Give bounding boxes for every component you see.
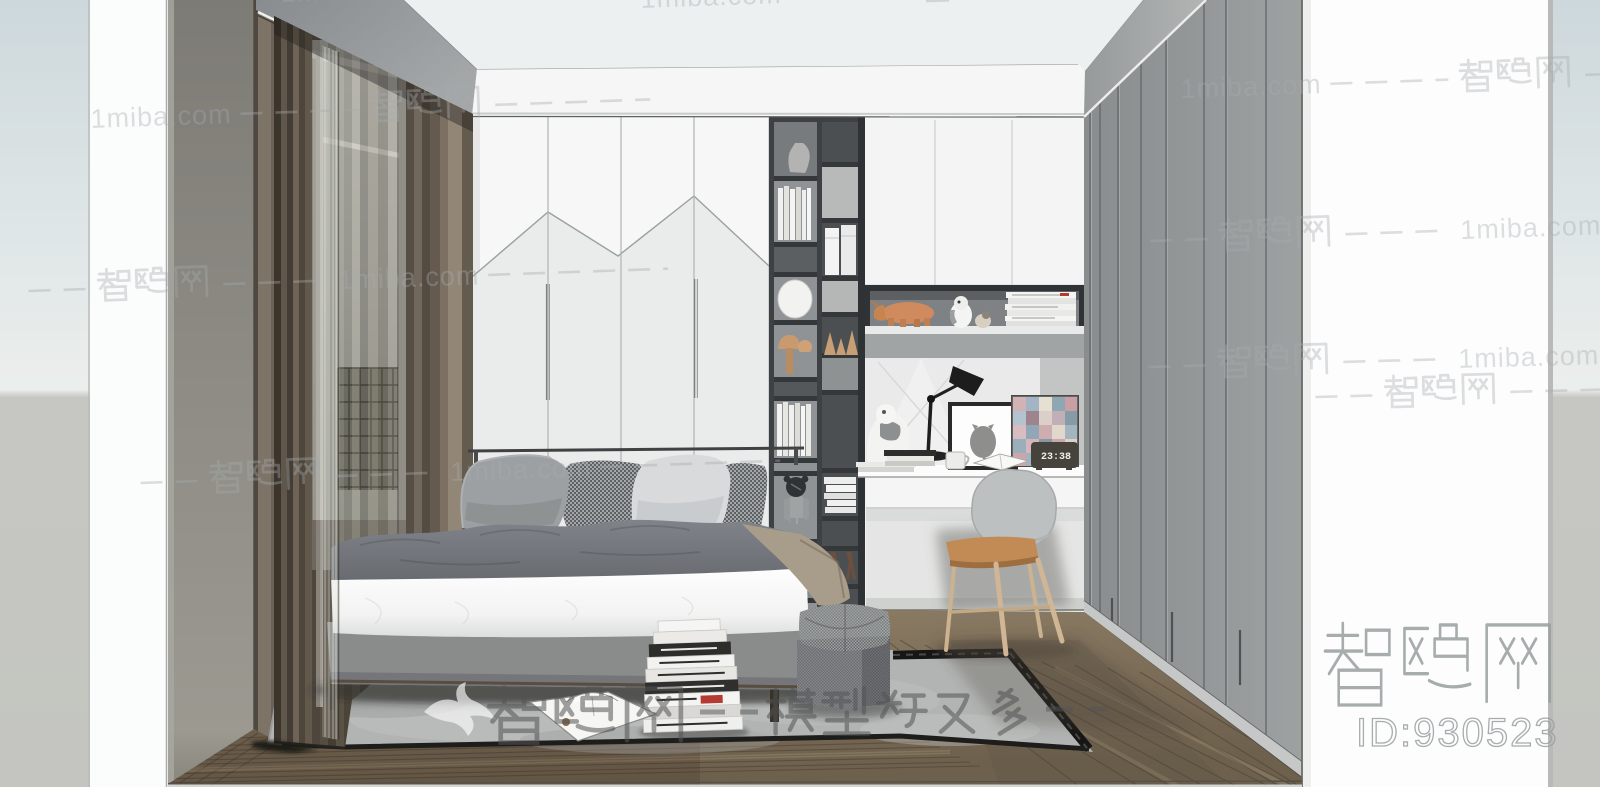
svg-text:23:38: 23:38 [1041, 452, 1071, 463]
svg-text:ID:930523: ID:930523 [1356, 711, 1559, 755]
